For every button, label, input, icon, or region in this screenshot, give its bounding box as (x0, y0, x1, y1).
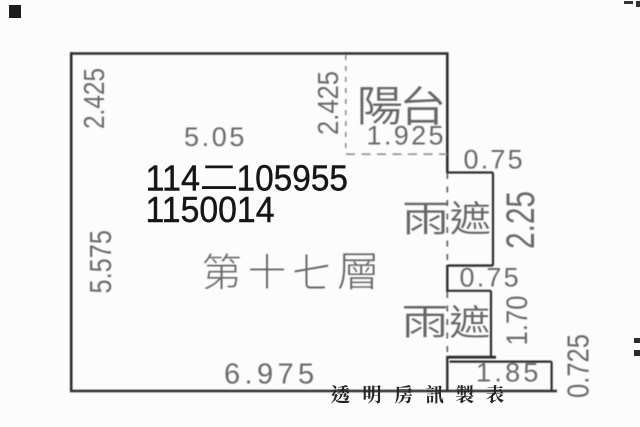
svg-text:2.425: 2.425 (79, 68, 111, 129)
svg-text:0.725: 0.725 (561, 334, 596, 398)
svg-text:5.05: 5.05 (184, 122, 247, 152)
svg-text:1.925: 1.925 (367, 121, 446, 151)
svg-text:0.75: 0.75 (460, 263, 521, 293)
svg-text:5.575: 5.575 (83, 230, 118, 294)
svg-text:2.425: 2.425 (313, 71, 345, 135)
svg-text:2.25: 2.25 (499, 191, 543, 249)
svg-text:1.70: 1.70 (501, 296, 534, 346)
svg-text:1.85: 1.85 (476, 358, 542, 388)
svg-text:0.75: 0.75 (464, 145, 525, 175)
svg-text:1150014: 1150014 (146, 189, 275, 230)
svg-text:6.975: 6.975 (224, 359, 319, 391)
